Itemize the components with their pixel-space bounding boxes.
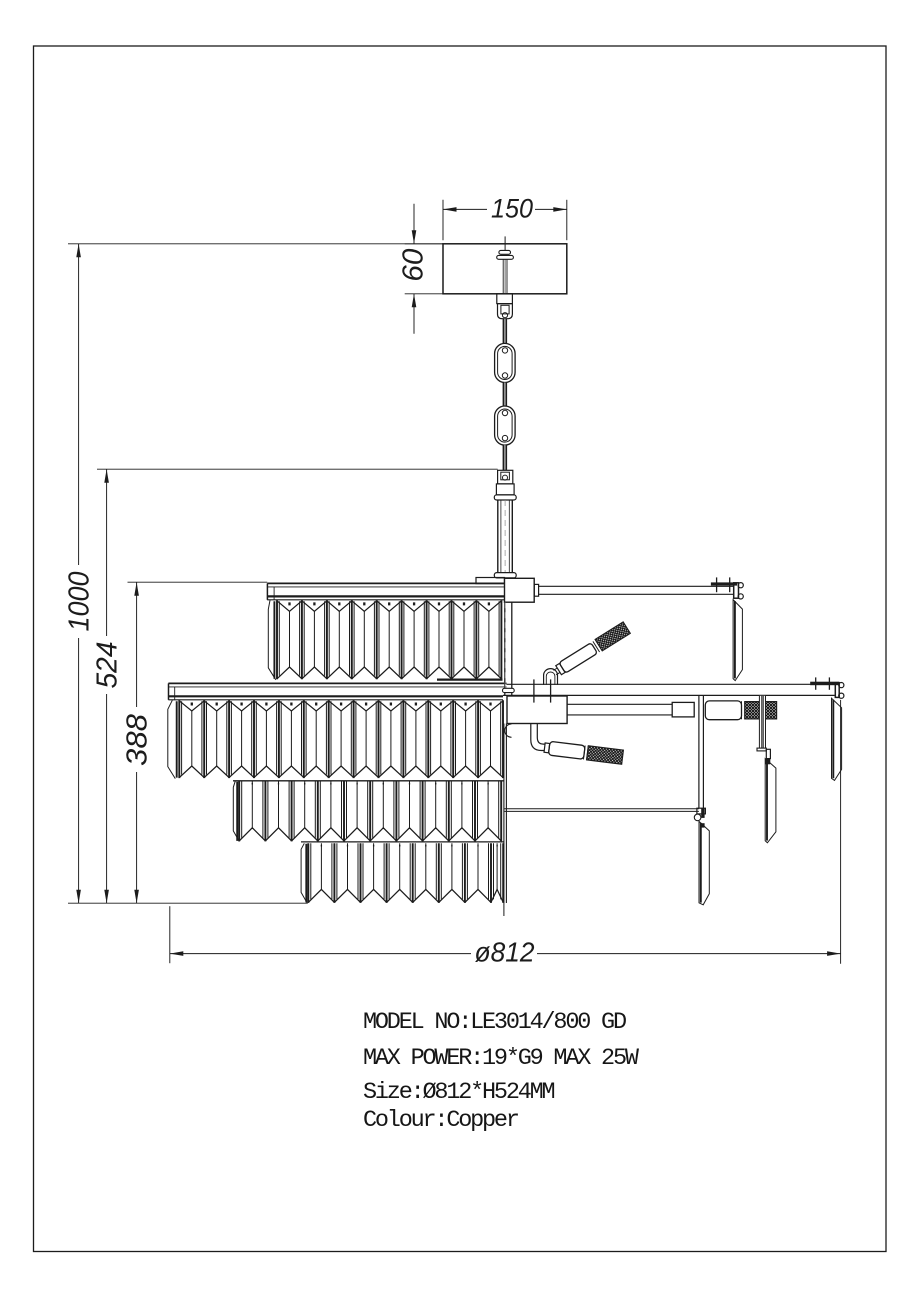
svg-text:150: 150	[491, 193, 533, 223]
svg-text:1000: 1000	[64, 571, 96, 631]
svg-text:388: 388	[122, 714, 154, 766]
svg-text:524: 524	[92, 642, 124, 689]
svg-text:ø812: ø812	[475, 937, 535, 968]
svg-text:60: 60	[398, 248, 430, 281]
